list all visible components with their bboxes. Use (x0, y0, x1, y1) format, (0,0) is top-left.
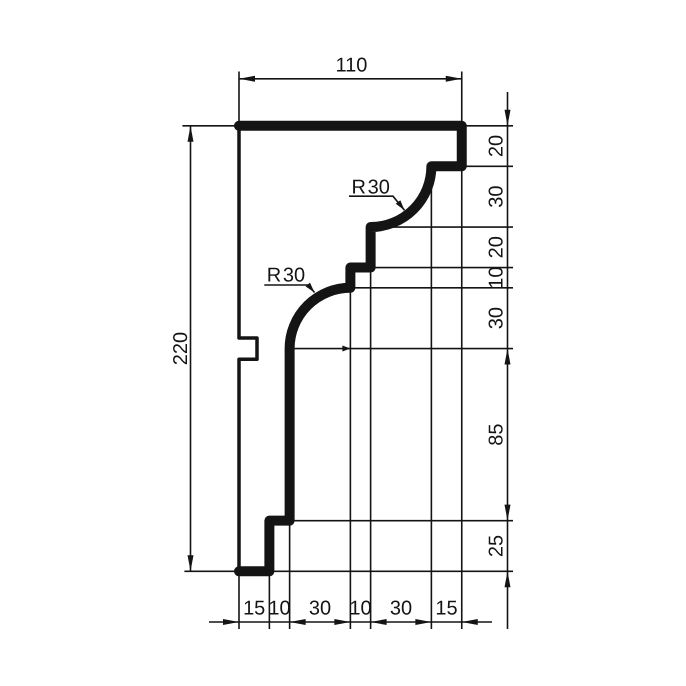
svg-text:30: 30 (309, 598, 331, 620)
svg-text:30: 30 (390, 598, 412, 620)
svg-text:15: 15 (243, 598, 265, 620)
svg-text:R 30: R 30 (267, 264, 305, 286)
svg-text:15: 15 (435, 598, 457, 620)
svg-text:30: 30 (486, 307, 508, 329)
svg-text:10: 10 (349, 598, 371, 620)
svg-text:R 30: R 30 (352, 177, 390, 199)
svg-text:10: 10 (268, 598, 290, 620)
svg-text:30: 30 (486, 186, 508, 208)
svg-text:20: 20 (486, 135, 508, 157)
svg-text:10: 10 (486, 267, 508, 289)
svg-text:25: 25 (486, 535, 508, 557)
svg-text:220: 220 (170, 332, 192, 365)
svg-text:20: 20 (486, 236, 508, 258)
svg-text:110: 110 (336, 55, 368, 77)
svg-text:85: 85 (486, 423, 508, 445)
